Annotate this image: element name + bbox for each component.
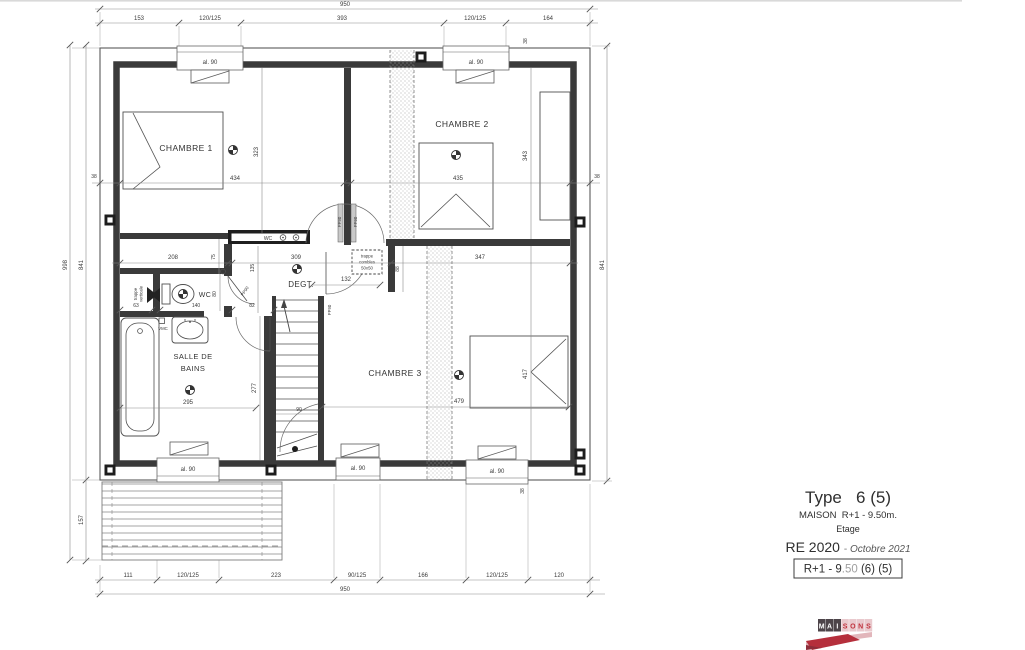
trappe-verticale-label: verticale bbox=[139, 285, 144, 302]
vmc-outlet bbox=[159, 318, 165, 324]
radiator bbox=[456, 70, 494, 83]
terrace bbox=[102, 482, 282, 560]
dim-c2-bottom: 347 bbox=[475, 255, 486, 261]
dim-top-5: 164 bbox=[543, 16, 554, 22]
dim-sdb-width: 295 bbox=[183, 400, 194, 406]
dim-bot-total: 950 bbox=[340, 587, 351, 593]
right-dimension-line: 841 bbox=[592, 43, 612, 484]
logo-letter: S bbox=[866, 624, 871, 631]
logo-letter: O bbox=[850, 624, 856, 631]
dim-bot-5: 166 bbox=[418, 573, 429, 579]
door-ref-label: PP90 bbox=[337, 216, 342, 227]
scan-edge bbox=[0, 0, 962, 2]
radiator bbox=[170, 442, 208, 455]
dim-82: 82 bbox=[249, 303, 255, 309]
wc-closet-label: WC bbox=[264, 236, 273, 242]
window-top-2: al. 90 bbox=[443, 46, 509, 70]
dim-bot-6: 120/125 bbox=[486, 573, 508, 579]
dim-wall-left: 38 bbox=[91, 174, 97, 180]
floor-plan-page: 950 153 120/125 393 120/125 164 38 111 1… bbox=[0, 0, 1025, 650]
top-dimension-lines: 950 153 120/125 393 120/125 164 38 bbox=[95, 2, 598, 46]
duct-strip-top bbox=[390, 50, 414, 239]
room-label-sdb-2: BAINS bbox=[181, 364, 206, 373]
dim-140: 140 bbox=[192, 303, 201, 309]
dim-sdb-height: 277 bbox=[252, 382, 258, 393]
room-label-chambre2: CHAMBRE 2 bbox=[435, 119, 488, 129]
trappe-combles-label: trappe bbox=[361, 254, 374, 259]
logo-letter: I bbox=[836, 624, 838, 631]
radiator bbox=[341, 444, 379, 457]
re-date: Octobre 2021 bbox=[850, 544, 911, 555]
type-line: Type 6 (5) bbox=[805, 488, 891, 507]
bathtub bbox=[121, 318, 159, 436]
maison-line: MAISON R+1 - 9.50m. bbox=[799, 510, 897, 521]
logo-letter: S bbox=[843, 624, 848, 631]
ref-box-text: R+1 - 9.50 (6) (5) bbox=[804, 564, 893, 576]
room-label-chambre1: CHAMBRE 1 bbox=[159, 143, 212, 153]
dim-top-2: 120/125 bbox=[199, 16, 221, 22]
ceiling-light-icon bbox=[452, 151, 461, 160]
ref-suffix: (6) (5) bbox=[858, 564, 893, 576]
toilet bbox=[162, 284, 194, 304]
door-ref-label: PP90 bbox=[327, 304, 332, 315]
dim-top-total: 950 bbox=[340, 2, 351, 8]
door-ref-label: PP90 bbox=[353, 216, 358, 227]
dim-offset-top-right: 38 bbox=[523, 38, 529, 44]
trappe-combles: trappe combles 50x50 bbox=[352, 250, 382, 274]
dim-top-3: 393 bbox=[337, 16, 348, 22]
door-ref-label: PP90 bbox=[263, 327, 268, 338]
dim-stair-width: 90 bbox=[296, 407, 302, 413]
dim-bot-3: 223 bbox=[271, 573, 282, 579]
dim-135: 135 bbox=[250, 264, 256, 273]
builder-logo: M A I S O N S bbox=[806, 619, 872, 650]
dim-309: 309 bbox=[291, 255, 302, 261]
staircase bbox=[276, 299, 318, 456]
window-bottom-1: al. 90 bbox=[157, 458, 219, 482]
window-label: al. 90 bbox=[203, 60, 218, 66]
dim-63: 63 bbox=[133, 303, 139, 309]
vmc-label: VMC bbox=[207, 270, 217, 275]
window-bottom-3: al. 90 bbox=[466, 460, 528, 484]
newel-post bbox=[292, 446, 298, 452]
dim-top-4: 120/125 bbox=[464, 16, 486, 22]
dim-bot-1: 111 bbox=[123, 573, 133, 579]
logo-letter: A bbox=[827, 624, 832, 631]
washbasin bbox=[172, 317, 208, 343]
ceiling-light-icon bbox=[186, 386, 195, 395]
room-label-wc: WC bbox=[199, 292, 211, 299]
dim-top-1: 153 bbox=[134, 16, 145, 22]
logo-letter: M bbox=[819, 624, 825, 631]
dim-right: 841 bbox=[600, 259, 606, 270]
re-label: RE 2020 bbox=[785, 539, 843, 555]
wc-closet: WC bbox=[228, 230, 310, 244]
ref-prefix: R+1 - 9 bbox=[804, 564, 842, 576]
radiator bbox=[191, 70, 229, 83]
ref-gray: .50 bbox=[842, 564, 858, 576]
ceiling-light-icon bbox=[455, 371, 464, 380]
ceiling-light-icon bbox=[179, 290, 188, 299]
radiator bbox=[478, 446, 516, 459]
dim-c3-height: 417 bbox=[523, 368, 529, 379]
dim-bot-2: 120/125 bbox=[177, 573, 199, 579]
dim-208: 208 bbox=[168, 255, 179, 261]
dim-terrace: 157 bbox=[79, 514, 85, 525]
bed-chambre3 bbox=[470, 336, 568, 408]
dim-75: 75 bbox=[211, 254, 217, 260]
dim-c2-height: 343 bbox=[523, 150, 529, 161]
dim-80: 80 bbox=[212, 291, 218, 297]
trappe-verticale-label: trappe bbox=[133, 287, 138, 300]
dim-left-outer: 998 bbox=[63, 259, 69, 270]
vmc-label: VMC bbox=[158, 326, 168, 331]
dim-132: 132 bbox=[341, 277, 352, 283]
dim-c1-width: 434 bbox=[230, 176, 241, 182]
dim-offset-bottom-right: 38 bbox=[520, 488, 526, 494]
doors bbox=[228, 204, 384, 351]
trappe-combles-label: combles bbox=[359, 260, 375, 265]
logo-letter: N bbox=[858, 624, 863, 631]
window-top-1: al. 90 bbox=[177, 46, 243, 70]
room-label-chambre3: CHAMBRE 3 bbox=[368, 368, 421, 378]
etage-line: Etage bbox=[836, 524, 860, 534]
dim-c3-width: 479 bbox=[454, 399, 465, 405]
dim-wall-right: 38 bbox=[594, 174, 600, 180]
room-label-sdb-1: SALLE DE bbox=[173, 352, 212, 361]
duct-strip-bottom bbox=[427, 246, 452, 480]
window-bottom-2: al. 90 bbox=[336, 458, 380, 480]
re2020-line: RE 2020 - Octobre 2021 bbox=[785, 539, 910, 555]
ceiling-light-icon bbox=[229, 146, 238, 155]
dim-left-inner: 841 bbox=[79, 259, 85, 270]
trappe-combles-label: 50x50 bbox=[361, 266, 373, 271]
window-label: al. 90 bbox=[181, 467, 196, 473]
door-ref-label: PP90 bbox=[240, 285, 250, 297]
window-label: al. 90 bbox=[490, 469, 505, 475]
ceiling-light-icon bbox=[293, 265, 302, 274]
dim-88: 88 bbox=[395, 266, 401, 272]
dim-c2-width: 435 bbox=[453, 176, 464, 182]
left-dimension-lines: 998 841 157 bbox=[63, 42, 102, 564]
window-label: al. 90 bbox=[469, 60, 484, 66]
title-block: Type 6 (5) MAISON R+1 - 9.50m. Etage RE … bbox=[785, 488, 910, 578]
dim-c1-height: 323 bbox=[254, 146, 260, 157]
window-label: al. 90 bbox=[351, 466, 366, 472]
wardrobe-chambre2 bbox=[540, 92, 570, 220]
dim-bot-4: 90/125 bbox=[348, 573, 367, 579]
dim-bot-7: 120 bbox=[554, 573, 565, 579]
